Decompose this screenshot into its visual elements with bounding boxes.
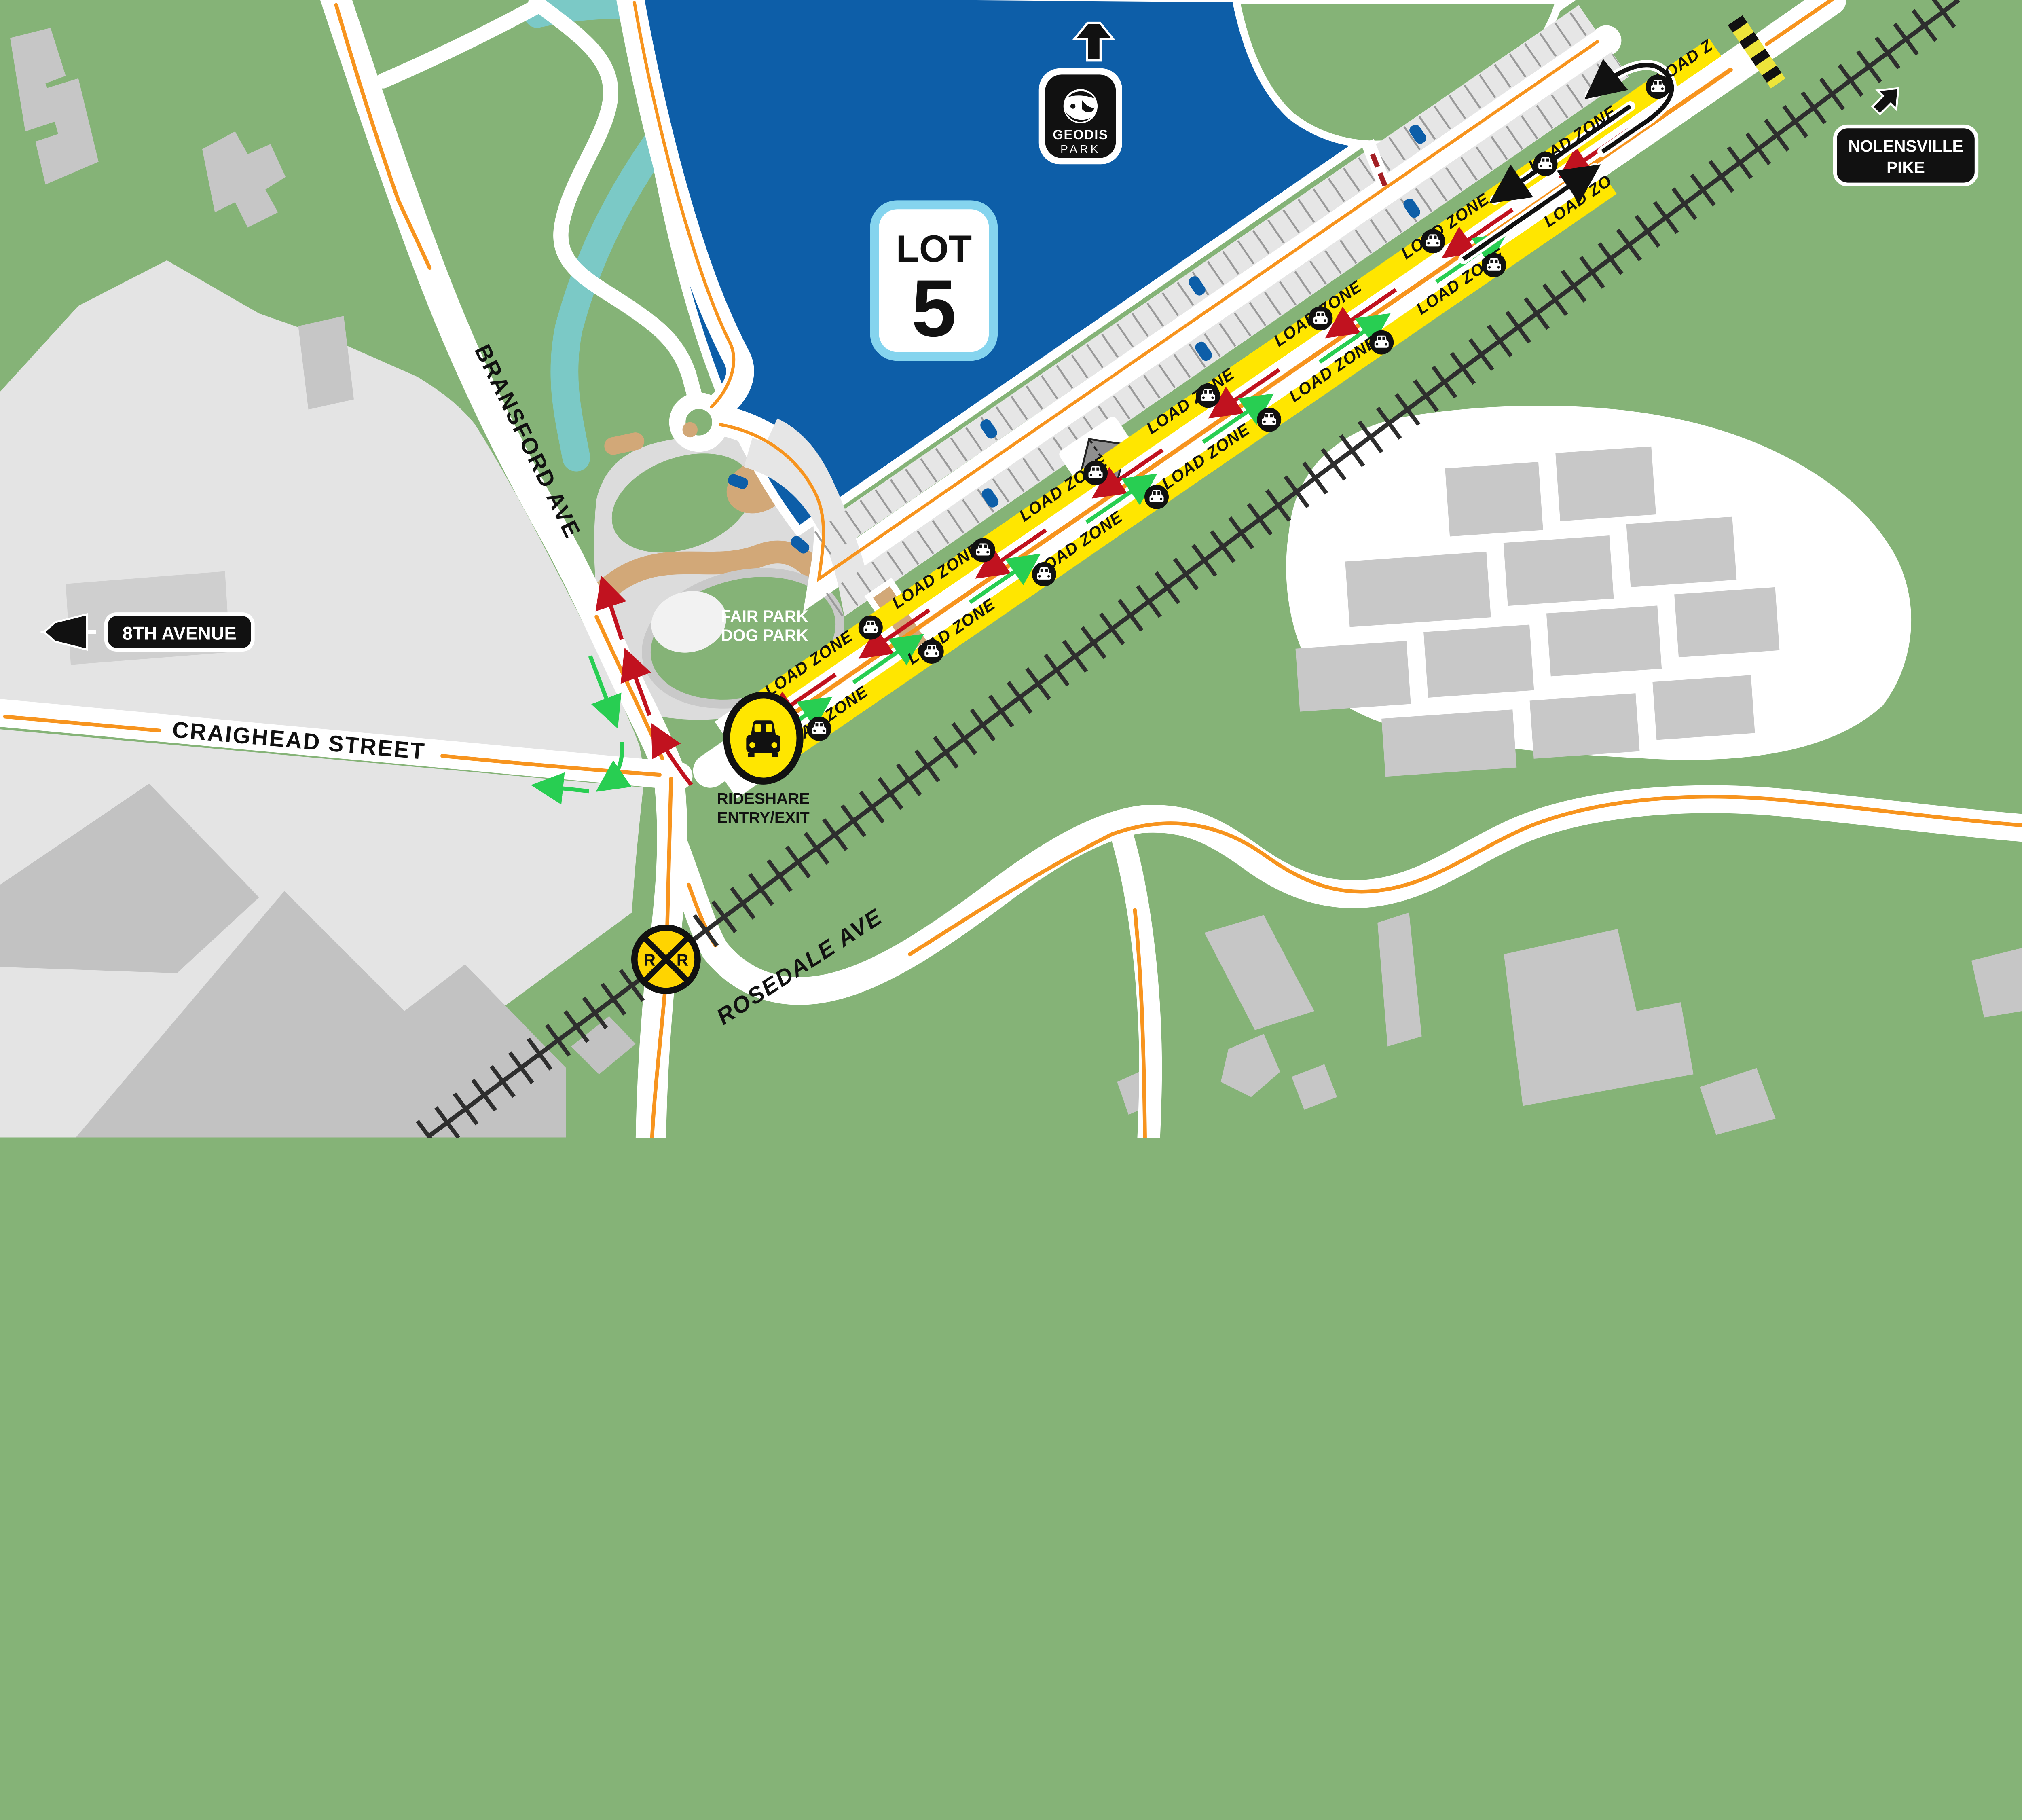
rideshare-marker: RIDESHARE ENTRY/EXIT <box>717 695 810 827</box>
lot-5-badge: LOT 5 <box>875 205 994 356</box>
geodis-globe-icon <box>1064 89 1098 123</box>
svg-text:NOLENSVILLE: NOLENSVILLE <box>1848 137 1963 155</box>
junction-gravel <box>683 422 698 438</box>
svg-text:5: 5 <box>912 263 956 353</box>
eighth-avenue-sign: 8TH AVENUE <box>46 614 253 650</box>
dog-park-label: DOG PARK <box>721 626 808 644</box>
rideshare-label: RIDESHARE <box>717 790 810 808</box>
junction-circle <box>677 401 720 444</box>
svg-text:PARK: PARK <box>1060 143 1100 155</box>
svg-text:PIKE: PIKE <box>1887 158 1925 177</box>
rideshare-label: ENTRY/EXIT <box>717 809 810 826</box>
map-canvas: LOAD ZONE LOAD ZONE LOAD ZONE LOAD ZONE … <box>0 0 2022 1138</box>
rideshare-car-icon <box>727 695 800 781</box>
svg-text:R: R <box>644 951 656 969</box>
railroad-crossing-icon: R R <box>635 928 698 991</box>
svg-text:GEODIS: GEODIS <box>1053 127 1108 142</box>
svg-text:8TH AVENUE: 8TH AVENUE <box>123 623 237 643</box>
svg-text:R: R <box>677 951 688 969</box>
dog-park-label: FAIR PARK <box>721 607 808 626</box>
